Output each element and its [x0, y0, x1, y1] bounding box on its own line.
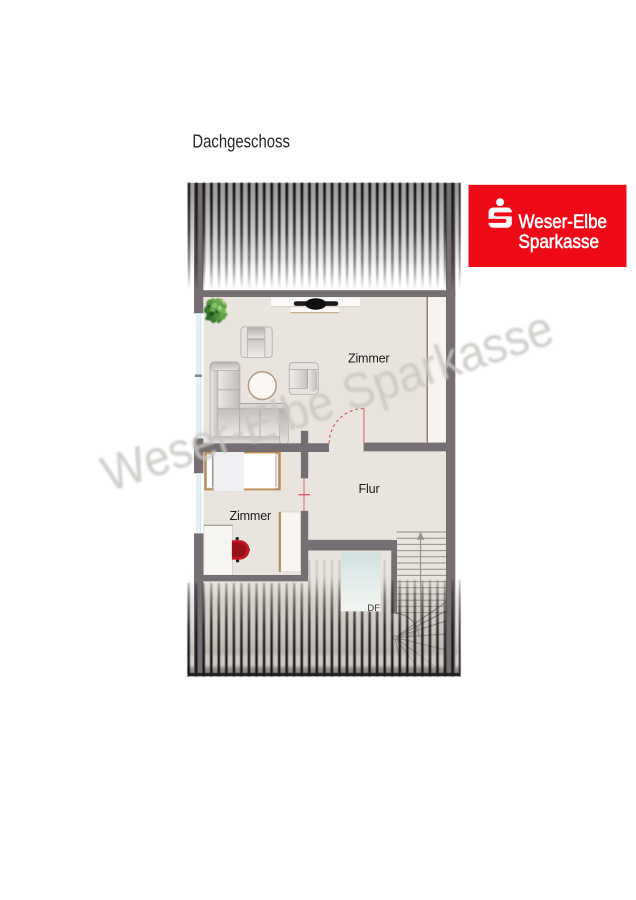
svg-text:Zimmer: Zimmer	[230, 509, 271, 523]
svg-text:Weser-Elbe: Weser-Elbe	[519, 212, 608, 233]
svg-text:Sparkasse: Sparkasse	[519, 232, 600, 253]
svg-text:DF: DF	[367, 603, 380, 614]
svg-text:Flur: Flur	[359, 482, 380, 496]
svg-text:Dachgeschoss: Dachgeschoss	[192, 132, 290, 152]
